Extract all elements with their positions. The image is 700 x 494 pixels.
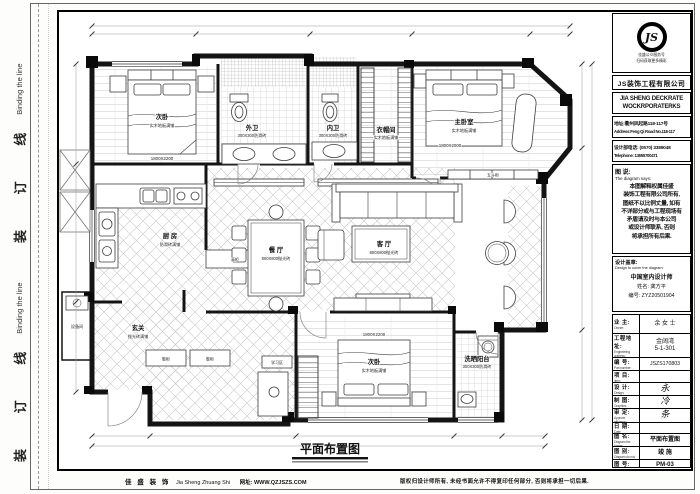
footer-company-en: Jia Sheng Zhuang Shi [176,480,230,486]
company-en-line2: WOCKRPORATERKS [623,103,681,111]
field-value: 金阔湾 [656,339,674,346]
binding-en: Binding the line [15,282,24,333]
company-name-en: JIA SHENG DECKRATE WOCKRPORATERKS [612,92,691,114]
field-value: 余 女 士 [640,315,690,333]
dim-label: 1800X2200 [151,156,174,161]
footer-company: 佳 盛 装 饰 Jia Sheng Zhuang Shi 网址: WWW.QZJ… [125,476,307,486]
field-value: JSZS170803 [640,358,690,370]
phone-section: 设计部电话: (0570) 3389048 Telephone: 1365570… [612,140,691,162]
field-value-signature: 冷 [640,396,690,408]
field-label-zh: 业 主: [614,318,638,326]
furniture-label-tall-cabinet: 高柜 [231,256,239,262]
diagram-says-label-en: The diagram says: [615,176,688,181]
field-row-diagram-name: 图 名:Diagram the Name: 平面布置图 [613,433,690,446]
says-line: 将承担所有后果. [615,233,688,241]
drawing-title: 平面布置图 [292,441,368,462]
field-label-zh: 设 计: [614,383,638,391]
field-row-item: 项 目:Item: [613,370,690,382]
field-value: PM-03 [640,460,690,468]
diagram-says-text: 本图解释权属佳盛 装饰工程有限公司所有, 图纸不以比例丈量, 如有 不详部分或与… [615,183,688,241]
field-row-number: 编 号:Part number: JSZS170803 [613,357,690,370]
field-label-zh: 图 名: [614,432,638,440]
footer-website: 网址: WWW.QZJSZS.COM [240,480,307,486]
material-label: 实木地板满铺 [374,134,399,140]
says-line: 矛盾请及时与本公司 [615,216,688,224]
field-label-zh: 审 定: [614,408,638,416]
logo-monogram: JS [645,31,658,44]
material-label: 800X800抛光砖 [262,255,291,261]
material-label: 300X300防滑砖 [319,132,348,138]
room-label-equipment: 设备间 [71,323,83,329]
stamp-number: 编号: ZYZ20501904 [615,292,688,299]
field-label-zh: 编 号: [614,358,638,366]
equipment-room-fixtures [66,296,88,310]
stamp-label-en: Design to cover the diagram: [615,266,688,270]
drawing-sheet: 装 订 线 Binding the line 装 订 线 Binding the… [0,0,700,494]
field-row-owner: 业 主:Owner: 余 女 士 [613,315,690,333]
address-zh: 地址:衢州凤起路118-117号 [614,120,689,127]
binding-line-text-bottom: 装 订 线 Binding the line [7,256,31,462]
field-value [640,371,690,382]
room-label-master-bedroom: 主卧室 [455,117,475,126]
material-label: 实木地板满铺 [150,122,175,128]
binding-zh: 装 订 线 [10,336,29,462]
room-label-entry: 玄关 [132,323,145,332]
field-value: 平面布置图 [640,434,690,446]
field-row-project-address: 工程地址:Engineering address: 金阔湾5-1-301 [613,333,690,357]
field-label-zh: 制 图: [614,396,638,404]
phone-zh: 设计部电话: (0570) 3389048 [614,144,689,151]
diagram-says-section: 图 说: The diagram says: 本图解释权属佳盛 装饰工程有限公司… [612,164,691,254]
field-value-signature: 条 [640,409,690,422]
floor-plan-drawing: 次卧 实木地板满铺 1800X2200 外卫 300X300防滑砖 内卫 300… [58,11,609,469]
bay-chairs [486,200,516,309]
logo-section: JS 佳盛公众服务号 扫码获取更多精彩 [612,13,691,73]
sheet-footer: 佳 盛 装 饰 Jia Sheng Zhuang Shi 网址: WWW.QZJ… [0,474,700,488]
field-row-diagram-class: 图 别:Diagram do not: 竣 施 [613,446,690,459]
footer-copyright: 版权归设计师所有, 未经书面允许不得复印任何部分, 否则将承担一切后果. [400,477,589,485]
field-value-signature: 永 [640,383,690,395]
furniture-label-chest: 五斗柜 [487,172,499,178]
title-block: JS 佳盛公众服务号 扫码获取更多精彩 JS装饰工程有限公司 JIA SHENG… [612,13,691,468]
field-row-drafting: 制 图:Graphics: 冷 [613,395,690,408]
room-label-cloakroom: 衣帽间 [377,125,396,134]
field-label-en: Owner: [614,326,638,330]
room-label-dining: 餐 厅 [269,245,284,254]
room-label-living: 客 厅 [377,239,392,248]
material-label: 实木地板满铺 [362,367,387,373]
room-label-laundry-balcony: 洗晒阳台 [464,354,489,363]
company-en-line1: JIA SHENG DECKRATE [620,95,683,103]
room-label-secondary-bedroom-bottom: 次卧 [368,357,381,366]
field-label-zh: 日 期: [614,422,638,430]
field-label-zh: 工程地址: [614,334,638,350]
binding-zh: 装 订 线 [10,117,29,243]
stamp-cert: 中国室内设计师 [615,272,688,281]
drawing-title-text: 平面布置图 [300,441,360,456]
diagram-says-label-zh: 图 说: [615,167,688,176]
field-row-approve: 审 定:Approve efficiency: 条 [613,408,690,422]
room-label-secondary-bedroom-top: 次卧 [156,112,169,121]
dim-label: 1800X2200 [363,332,386,337]
says-line: 装饰工程有限公司所有, [615,191,688,199]
logo-caption-2: 扫码获取更多精彩 [636,59,666,64]
elevator-core [60,150,90,232]
material-label: 实木地板满铺 [452,127,477,133]
design-stamp-section: 设计盖章: Design to cover the diagram: 中国室内设… [612,256,691,312]
material-label: 抛光砖满铺 [128,333,148,339]
field-row-diagram-number: 图 号:Diagram number: PM-03 [613,459,690,468]
info-fields-table: 业 主:Owner: 余 女 士 工程地址:Engineering addres… [612,314,691,468]
field-row-design: 设 计:Design: 永 [613,382,690,395]
footer-company-zh: 佳 盛 装 饰 [125,479,170,486]
field-value: 竣 施 [640,447,690,459]
room-label-inner-bathroom: 内卫 [327,123,340,132]
company-logo: JS [637,22,667,52]
room-label-kitchen: 厨 房 [163,231,177,240]
binding-line-text-top: 装 订 线 Binding the line [7,37,31,243]
furniture-label-shoe-cabinet: 鞋柜 [162,356,170,362]
room-label-study-area: 学习区 [271,359,283,365]
material-label: 300X300防滑砖 [463,363,492,369]
stamp-name: 姓名: 龚方平 [615,283,688,290]
address-section: 地址:衢州凤起路118-117号 Address:Feng Qi Road No… [612,116,691,138]
material-label: 800X800抛光砖 [370,249,399,255]
says-line: 不详部分或与工程现场有 [615,208,688,216]
field-label-zh: 图 别: [614,447,638,455]
dim-label: 1800X2000 [439,143,462,148]
field-value [640,423,690,433]
field-label-zh: 图 号: [614,460,638,468]
study-desk [258,356,292,416]
binding-en: Binding the line [15,63,24,114]
logo-caption-1: 佳盛公众服务号 [638,53,665,58]
room-label-outer-bathroom: 外卫 [246,123,259,132]
binding-dash-line-2 [48,4,49,489]
field-label-zh: 项 目: [614,371,638,379]
stamp-label-zh: 设计盖章: [615,259,688,266]
binding-dash-line [38,4,39,489]
field-label-en: Diagram number: [614,468,638,469]
says-line: 或设计师联系, 否则 [615,224,688,232]
material-label: 防滑砖满铺 [160,241,180,247]
field-value-2: 5-1-301 [655,346,676,353]
material-label: 300X300防滑砖 [238,132,267,138]
says-line: 图纸不以比例丈量, 如有 [615,200,688,208]
company-name-zh: JS装饰工程有限公司 [612,75,691,90]
says-line: 本图解释权属佳盛 [615,183,688,191]
address-en: Address:Feng Qi Road No.118-117 [614,129,689,134]
phone-en: Telephone: 13655700471 [614,153,689,158]
furniture-label-shoe-cabinet: 鞋柜 [206,356,214,362]
